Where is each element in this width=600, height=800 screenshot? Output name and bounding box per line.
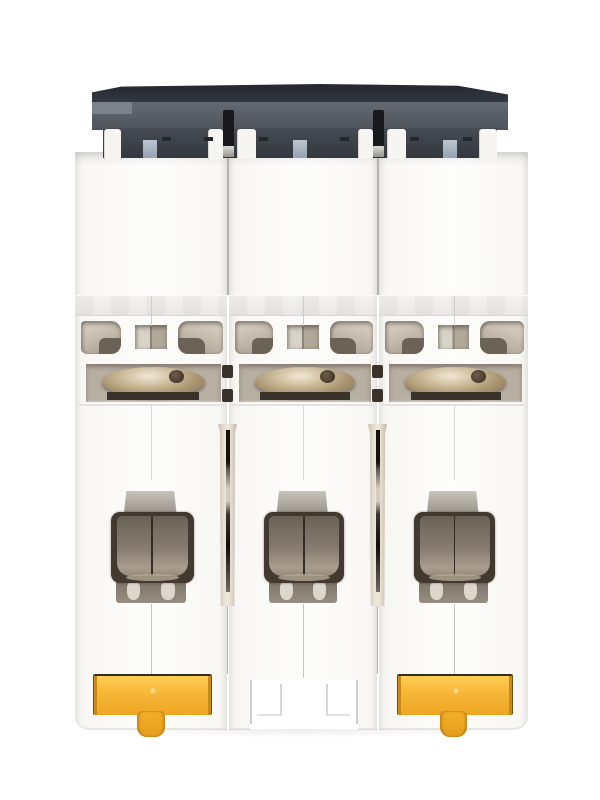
drop-shadow [95,729,505,738]
pole-module-right [379,152,528,730]
mold-seam [303,604,304,678]
recess-step [257,684,282,716]
vent-opening [287,325,318,349]
module-shoulder [479,129,497,159]
vent-opening [385,321,424,354]
vent-shadow [330,338,356,354]
housing-top-face [92,102,508,130]
junction-hole [372,389,383,402]
screw-clamp-bar [411,392,501,400]
terminal-notch [430,582,443,600]
recess-edge [250,680,252,724]
module-shoulder [104,129,121,159]
vent-opening [81,321,121,354]
mold-seam [454,404,455,480]
tier-notch [463,137,472,141]
tier-notch [410,137,419,141]
tier-notch [340,137,349,141]
terminal-cage [264,512,345,583]
terminal-notch [280,582,293,600]
vent-opening [235,321,273,354]
mold-seam [303,296,304,326]
mold-seam [303,404,304,480]
vent-shadow [99,338,121,354]
terminal-panel [420,516,454,576]
din-rail-clip [94,674,211,715]
terminal-panel [153,516,188,576]
terminal-notch [313,582,326,600]
module-junction-seam [227,606,228,674]
din-rail-clip [398,674,513,715]
vent-shadow [252,338,273,354]
junction-pin-tip [223,146,234,157]
terminal-highlight [126,574,179,581]
tier-notch [162,137,171,141]
module-junction-seam [377,606,378,674]
clip-highlight [453,688,459,694]
terminal-panel [117,516,152,576]
module-junction-seam [377,156,379,295]
mold-seam [151,404,152,480]
product-photo [0,0,600,800]
center-index-tab [293,140,307,158]
mold-seam [151,604,152,678]
junction-groove [218,424,237,606]
terminal-notch [464,582,477,600]
vent-opening [178,321,223,354]
junction-hole [372,365,383,378]
philips-recess-icon [471,370,486,383]
junction-groove [368,424,387,606]
vent-shadow [480,338,506,354]
groove-slit [226,430,230,592]
terminal-panel [455,516,489,576]
vent-shadow [402,338,423,354]
terminal-notch [161,582,174,600]
tier-notch [259,137,268,141]
module-shoulder [387,129,406,159]
clip-highlight [150,688,156,694]
tier-notch [204,137,213,141]
junction-pin [373,110,384,147]
terminal-panel [305,516,339,576]
terminal-highlight [429,574,481,581]
terminal-cage [111,512,194,583]
terminal-cage [414,512,495,583]
screw-slot [389,364,522,402]
module-shoulder [358,129,373,159]
terminal-divider [151,518,153,575]
vent-opening [438,325,469,349]
vent-opening [135,325,167,349]
module-junction-seam [227,156,229,295]
housing-top-step [92,102,132,114]
philips-recess-icon [320,370,335,383]
philips-recess-icon [169,370,184,383]
mold-seam [151,296,152,326]
pole-module-left [75,152,227,730]
terminal-highlight [278,574,330,581]
module-shoulder [208,129,223,159]
terminal-panel [269,516,303,576]
terminal-notch [127,582,140,600]
din-rail-recess [250,680,358,731]
mold-seam [454,604,455,678]
module-shoulder [237,129,256,159]
terminal-divider [303,518,305,575]
junction-pin-tip [373,146,384,157]
terminal-divider [454,518,456,575]
pole-module-middle [229,152,377,730]
vent-opening [330,321,374,354]
groove-slit [376,430,380,592]
screw-slot [239,364,371,402]
vent-shadow [178,338,205,354]
center-index-tab [443,140,457,158]
junction-pin [223,110,234,147]
junction-hole [222,365,233,378]
screw-slot [86,364,221,402]
screw-clamp-bar [260,392,350,400]
mold-seam [454,296,455,326]
recess-step [326,684,351,716]
vent-opening [480,321,524,354]
junction-hole [222,389,233,402]
screw-clamp-bar [107,392,199,400]
recess-edge [356,680,358,724]
center-index-tab [143,140,157,158]
